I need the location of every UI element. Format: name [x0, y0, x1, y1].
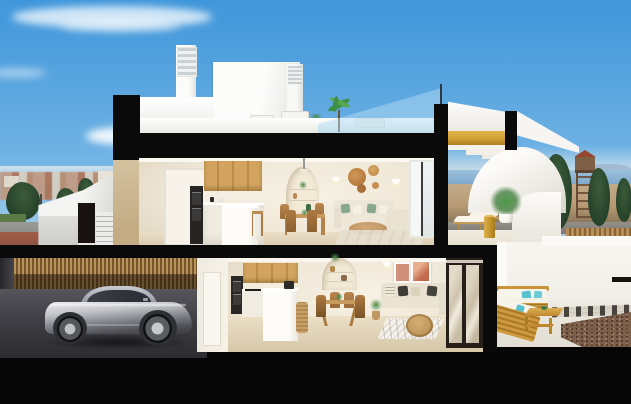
- cooktop: [245, 289, 261, 291]
- door-track: [446, 260, 483, 263]
- table-centerpiece: [335, 293, 343, 301]
- kettle: [210, 197, 214, 202]
- tree: [588, 168, 610, 226]
- wall-slit-window: [612, 277, 631, 282]
- oven-door: [192, 192, 201, 205]
- upper-cabinets: [204, 161, 262, 191]
- oven-door: [233, 281, 241, 292]
- lounger-leg: [458, 224, 460, 230]
- sliding-mirror-doors: [446, 258, 483, 348]
- timber-slat-wall: [14, 258, 197, 289]
- dining-chair: [307, 210, 317, 232]
- section-cut-wall: [483, 252, 497, 351]
- oven-door: [192, 208, 201, 221]
- tree: [616, 178, 631, 222]
- stair-canopy: [448, 99, 506, 133]
- plant-leaves: [370, 299, 382, 311]
- niche-vase: [330, 266, 335, 272]
- section-cut-slab: [505, 111, 517, 150]
- dining-chair: [355, 295, 365, 318]
- niche-shelf: [326, 272, 353, 273]
- wall-basket: [357, 184, 366, 193]
- pillow-striped: [385, 286, 395, 296]
- niche-top-plant: [330, 253, 340, 262]
- coffee-machine: [284, 281, 294, 289]
- pillow-beige: [411, 287, 420, 296]
- pillow-charcoal: [427, 286, 438, 297]
- tower-cabin: [575, 157, 595, 173]
- pillow-green: [341, 204, 351, 214]
- car-wheel: [143, 314, 172, 343]
- car-beltline-highlight: [50, 304, 186, 306]
- rattan-stool: [296, 302, 308, 333]
- kitchen-island: [263, 288, 298, 341]
- basket: [372, 311, 380, 320]
- sofa-arm: [334, 208, 341, 228]
- garage: [0, 258, 207, 358]
- section-cut-roof-slab: [113, 133, 447, 160]
- pendant-shade: [300, 169, 308, 173]
- ceiling: [225, 258, 483, 262]
- pot: [218, 198, 224, 202]
- dining-chair: [286, 210, 296, 232]
- upper-cabinets: [243, 263, 298, 283]
- sliding-glass-door: [409, 160, 435, 238]
- bar-stool: [252, 211, 263, 236]
- niche-vase: [341, 275, 347, 281]
- sofa-seat: [381, 297, 443, 308]
- wall-sconce: [392, 179, 400, 184]
- pillow-white: [353, 205, 362, 214]
- oven-door: [233, 294, 241, 305]
- chimney-louvre: [177, 47, 197, 77]
- chimney: [287, 64, 303, 114]
- mirror-panel: [449, 265, 462, 343]
- outdoor-coffee-table: [523, 308, 563, 336]
- plant-basket: [370, 303, 382, 320]
- cloud: [60, 20, 180, 32]
- art-frame: [411, 260, 431, 283]
- architectural-cutaway-render: [0, 0, 631, 404]
- niche-shelf: [326, 281, 353, 282]
- wall-basket: [348, 168, 366, 186]
- niche-plant: [299, 181, 307, 189]
- art-frame: [394, 262, 411, 283]
- cloud: [0, 68, 46, 78]
- upper-floor-interior: [139, 158, 435, 250]
- table-leg: [525, 316, 528, 330]
- dining-chair: [316, 295, 326, 317]
- oven-column: [190, 186, 203, 244]
- pillow-charcoal: [398, 286, 409, 297]
- mirror-panel: [466, 265, 479, 343]
- car-wheel: [57, 316, 83, 342]
- lower-terrace: [497, 228, 631, 347]
- gold-side-table: [484, 215, 495, 238]
- pillow-green: [367, 204, 377, 214]
- ceiling: [139, 158, 435, 162]
- lounger-leg: [480, 224, 482, 230]
- door-glass-tint: [423, 162, 433, 236]
- car-mirror: [143, 298, 148, 301]
- section-cut-wall: [434, 104, 448, 255]
- stair-wood-soffit: [448, 131, 505, 146]
- rattan-coffee-table: [406, 314, 433, 337]
- wall-basket: [372, 182, 379, 189]
- niche-vase: [293, 193, 297, 199]
- table-bowl: [541, 306, 547, 310]
- garage-partition-wall: [197, 258, 228, 352]
- interior-door: [203, 272, 221, 346]
- niche-shelf: [289, 200, 316, 201]
- stair-doorway: [78, 203, 95, 243]
- plant-leaves: [490, 186, 522, 214]
- wall-sconce: [332, 177, 340, 182]
- patio-wall-cap: [542, 236, 631, 246]
- niche-shelf: [289, 189, 316, 190]
- lower-floor-interior: [197, 258, 483, 352]
- sports-car: [45, 286, 192, 348]
- table-shelf: [525, 324, 554, 327]
- wall-basket: [368, 165, 379, 176]
- chimney-louvre: [288, 66, 302, 84]
